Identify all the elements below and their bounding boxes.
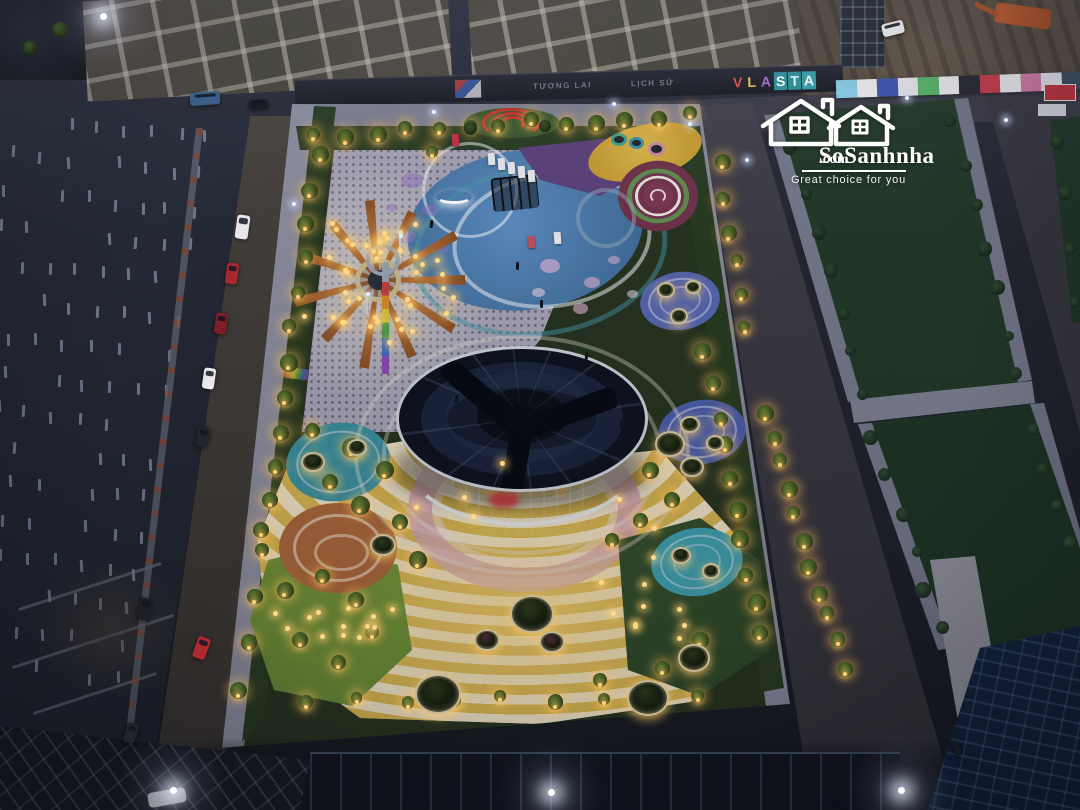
construction-pillar: [181, 128, 185, 140]
path-light: [382, 231, 387, 236]
street-lamp-light: [366, 292, 370, 296]
path-light: [285, 626, 290, 631]
path-light: [682, 623, 687, 628]
paint-splash: [532, 288, 545, 297]
work-light: [548, 789, 555, 796]
planter-tree: [375, 537, 392, 551]
planter-tree: [517, 599, 547, 624]
construction-pillar: [13, 441, 17, 453]
roof-hub: [506, 405, 538, 433]
vlasta-letter: S: [774, 71, 788, 89]
tree-uplight: [529, 122, 533, 126]
sign-board: [488, 153, 496, 165]
street-tree: [494, 690, 506, 702]
trampoline: [648, 142, 665, 156]
tree-uplight: [723, 448, 727, 452]
planter-tree: [688, 283, 697, 290]
tree-uplight: [726, 237, 730, 241]
tree-uplight: [743, 330, 747, 334]
person: [430, 220, 434, 228]
tree-uplight: [398, 525, 402, 529]
path-light: [327, 255, 332, 260]
tree-uplight: [791, 515, 795, 519]
construction-pillar: [95, 306, 99, 318]
tree-uplight: [236, 694, 240, 698]
tree-planter: [539, 631, 565, 653]
hoarding-panel: [979, 75, 1000, 94]
path-light: [378, 250, 383, 255]
construction-pillar: [37, 152, 41, 164]
tree-uplight: [382, 474, 386, 478]
path-light: [307, 615, 312, 620]
construction-pillar: [122, 126, 125, 138]
construction-pillar: [108, 381, 111, 393]
trampoline: [611, 133, 627, 146]
tree-uplight: [622, 124, 626, 128]
tree-planter: [347, 439, 367, 456]
construction-pillar: [38, 479, 41, 491]
path-light: [462, 495, 467, 500]
street-tree: [715, 154, 731, 170]
construction-pillar: [148, 312, 152, 324]
tree-uplight: [437, 131, 441, 135]
tree-uplight: [763, 417, 767, 421]
street-tree: [722, 471, 738, 487]
sign-board: [452, 134, 460, 146]
construction-pillar: [1, 515, 4, 527]
street-tree: [664, 492, 680, 508]
tree-uplight: [737, 542, 741, 546]
construction-pillar: [60, 190, 64, 202]
street-tree: [683, 106, 697, 120]
tree-uplight: [286, 366, 290, 370]
tree-uplight: [287, 329, 291, 333]
street-tree: [539, 120, 551, 132]
street-tree: [398, 121, 412, 135]
lawn-tree: [857, 389, 868, 400]
path-light: [441, 286, 446, 291]
street-tree: [370, 126, 387, 143]
lawn-tree: [838, 308, 850, 320]
street-tree: [409, 551, 427, 569]
street-tree: [322, 474, 338, 490]
construction-pillar: [83, 520, 86, 532]
tree-uplight: [719, 422, 723, 426]
sign-board: [528, 236, 536, 248]
paint-splash: [627, 290, 638, 298]
tree-planter: [671, 547, 691, 564]
street-tree: [351, 496, 370, 515]
path-light: [413, 254, 418, 259]
construction-pillar: [127, 268, 130, 280]
street-tree: [402, 696, 414, 708]
construction-pillar: [2, 185, 5, 197]
hoarding-panel: [1000, 74, 1021, 93]
planter-tree: [351, 441, 363, 451]
billboard-text-tuong-lai: TƯƠNG LAI: [533, 80, 592, 91]
tree-uplight: [739, 297, 743, 301]
construction-pillar: [57, 375, 61, 387]
tree-planter: [680, 416, 700, 433]
tree-planter: [474, 629, 500, 651]
lawn-tree: [977, 241, 992, 256]
tree-planter: [510, 595, 554, 632]
lawn-tree: [824, 263, 838, 277]
street-tree: [831, 632, 845, 646]
construction-pillar: [71, 118, 74, 130]
street-tree: [348, 592, 364, 608]
street-tree: [787, 506, 800, 519]
path-light: [405, 297, 410, 302]
tree-uplight: [282, 401, 286, 405]
street-tree: [52, 22, 68, 38]
street-tree: [292, 632, 308, 648]
vlasta-letter: A: [759, 72, 774, 90]
path-light: [651, 555, 656, 560]
tree-planter: [680, 457, 704, 477]
tree-uplight: [787, 493, 791, 497]
construction-pillar: [0, 549, 2, 561]
construction-pillar: [117, 343, 120, 355]
car-windshield: [199, 429, 208, 435]
watermark-sosanhnha: SoSanhnha.com Great choice for you: [756, 94, 912, 186]
tree-uplight: [564, 127, 568, 131]
tree-uplight: [282, 593, 286, 597]
street-tree: [524, 112, 539, 127]
ring-swirl: [576, 188, 636, 248]
street-tree: [691, 690, 703, 702]
street-tree: [559, 117, 574, 132]
path-light: [652, 526, 657, 531]
work-light: [898, 787, 905, 794]
street-tree: [23, 41, 37, 55]
tree-uplight: [696, 698, 700, 702]
tree-uplight: [376, 138, 380, 142]
car-windshield: [251, 100, 264, 103]
construction-pillar: [117, 156, 121, 168]
planter-tree: [661, 285, 672, 294]
car-windshield: [128, 725, 137, 732]
tree-uplight: [594, 127, 598, 131]
construction-pillar: [142, 489, 146, 501]
house-logo-icon: [759, 94, 909, 150]
lawn-tree: [1065, 243, 1076, 254]
construction-pillar: [122, 454, 125, 466]
lawn-tree: [990, 280, 1005, 295]
path-light: [440, 272, 445, 277]
planter-tree: [544, 634, 561, 648]
street-tree: [642, 462, 659, 479]
tree-planter: [670, 308, 688, 323]
construction-pillar: [173, 167, 176, 179]
construction-pillar: [113, 529, 117, 541]
street-lamp-light: [292, 202, 296, 206]
planter-tree: [634, 684, 663, 708]
tree-planter: [415, 674, 461, 713]
street-lamp-light: [745, 158, 749, 162]
sign-board: [554, 232, 562, 244]
tree-uplight: [311, 137, 315, 141]
planter-tree: [675, 549, 687, 559]
sign-board: [498, 158, 506, 170]
construction-pillar: [4, 365, 7, 377]
tree-uplight: [598, 683, 602, 687]
tree-uplight: [260, 553, 264, 557]
street-tree: [299, 250, 313, 264]
construction-pillar: [90, 340, 93, 352]
tree-planter: [370, 534, 396, 556]
dirt-patch: [30, 560, 190, 700]
tree-uplight: [354, 603, 358, 607]
street-tree: [351, 692, 362, 703]
car-windshield: [228, 265, 237, 271]
street-tree: [315, 569, 330, 584]
path-light: [395, 317, 400, 322]
construction-pillar: [163, 202, 166, 214]
construction-pillar: [67, 303, 70, 315]
construction-pillar: [9, 475, 13, 487]
construction-pillar: [66, 157, 70, 169]
sign-board: [508, 162, 516, 174]
billboard-graphic: [455, 79, 481, 98]
street-tree: [305, 423, 320, 438]
tree-uplight: [610, 543, 614, 547]
path-light: [377, 239, 382, 244]
path-light: [398, 248, 403, 253]
tree-uplight: [403, 131, 407, 135]
street-tree: [426, 146, 438, 158]
planter-tree: [660, 435, 680, 451]
tree-uplight: [657, 123, 661, 127]
street-tree: [307, 128, 320, 141]
observation-tower: [382, 262, 389, 374]
street-tree: [255, 543, 269, 557]
construction-pillar: [78, 413, 81, 425]
construction-pillar: [108, 233, 112, 245]
watermark-tagline: Great choice for you: [756, 174, 912, 186]
billboard-text-lich-su: LỊCH SỬ: [631, 78, 675, 88]
solar-panel-roof: [396, 346, 648, 492]
tree-uplight: [304, 705, 308, 709]
tree-uplight: [296, 295, 300, 299]
sign-board: [528, 170, 536, 182]
path-light: [375, 319, 380, 324]
path-light: [343, 268, 348, 273]
path-light: [414, 505, 419, 510]
path-light: [331, 315, 336, 320]
tree-uplight: [357, 509, 361, 513]
street-tree: [268, 459, 283, 474]
construction-pillar: [153, 271, 157, 283]
construction-pillar: [34, 333, 37, 345]
paint-splash: [422, 205, 438, 216]
construction-pillar: [116, 488, 119, 500]
construction-pillar: [22, 405, 26, 417]
lawn-tree: [845, 346, 856, 357]
path-light: [365, 624, 370, 629]
street-tree: [301, 183, 317, 199]
tree-uplight: [773, 442, 777, 446]
tree-planter: [301, 452, 325, 472]
street-tree: [694, 343, 711, 360]
planter-tree: [674, 311, 685, 320]
tree-planter: [627, 680, 669, 716]
construction-pillar: [137, 383, 140, 395]
sign-board: [518, 166, 526, 178]
construction-pillar: [28, 518, 31, 530]
street-tree: [633, 513, 648, 528]
planter-tree: [479, 632, 496, 646]
construction-pillar: [0, 400, 1, 412]
construction-pillar: [123, 306, 126, 318]
construction-pillar: [73, 263, 76, 275]
construction-pillar: [163, 239, 167, 251]
tree-uplight: [802, 545, 806, 549]
vlasta-letter: T: [788, 71, 801, 89]
tree-planter: [685, 280, 701, 294]
street-tree: [655, 661, 670, 676]
street-lamp-light: [399, 234, 403, 238]
street-tree: [277, 390, 293, 406]
construction-pillar: [95, 121, 98, 133]
tree-uplight: [660, 671, 664, 675]
lawn-tree: [915, 582, 930, 597]
tree-planter: [706, 435, 724, 450]
lawn-tree: [1037, 463, 1047, 473]
construction-pillar: [149, 459, 152, 471]
car-windshield: [217, 315, 226, 321]
white-sign: [1038, 104, 1066, 116]
hoarding-panel: [938, 76, 959, 95]
construction-pillar: [142, 203, 145, 215]
construction-pillar: [140, 532, 143, 544]
tree-uplight: [638, 523, 642, 527]
tree-uplight: [278, 436, 282, 440]
tree-planter: [655, 431, 685, 457]
scaffold-tower: [840, 0, 884, 68]
tree-planter: [678, 644, 710, 671]
tree-uplight: [318, 158, 322, 162]
tree-uplight: [498, 698, 502, 702]
tree-uplight: [430, 154, 434, 158]
tree-uplight: [825, 616, 829, 620]
lawn-tree: [801, 189, 812, 200]
blue-truck: [190, 90, 221, 105]
car-windshield: [140, 600, 150, 607]
street-tree: [464, 122, 477, 135]
car-windshield: [952, 742, 958, 747]
car-windshield: [194, 93, 215, 98]
path-light: [345, 238, 350, 243]
tree-uplight: [806, 571, 810, 575]
street-tree: [230, 682, 247, 699]
tree-uplight: [711, 387, 715, 391]
tree-uplight: [310, 433, 314, 437]
construction-pillar: [150, 125, 153, 137]
vlasta-letter: A: [802, 71, 817, 89]
lawn-tree: [912, 546, 923, 557]
construction-fence-bottom: [310, 752, 900, 810]
path-light: [410, 329, 415, 334]
construction-pillar: [87, 190, 90, 202]
vlasta-letter: L: [745, 72, 758, 90]
path-light: [444, 311, 449, 316]
tree-uplight: [320, 579, 324, 583]
street-tree: [748, 594, 766, 612]
street-tree: [593, 673, 607, 687]
street-tree: [392, 514, 408, 530]
hoarding-panel: [959, 75, 980, 94]
street-tree: [721, 225, 737, 241]
tree-uplight: [336, 665, 340, 669]
planter-tree: [305, 455, 320, 467]
path-light: [340, 320, 345, 325]
street-tree: [838, 662, 853, 677]
lawn-tree: [863, 430, 878, 445]
street-tree: [433, 122, 446, 135]
tree-uplight: [406, 705, 410, 709]
lawn-tree: [1058, 186, 1072, 200]
person: [516, 262, 519, 270]
street-lamp-light: [612, 102, 616, 106]
planter-tree: [683, 648, 704, 666]
white-van: [234, 214, 250, 240]
street-tree: [598, 693, 610, 705]
planter-tree: [422, 679, 454, 706]
street-tree: [811, 586, 828, 603]
construction-pillar: [99, 452, 102, 464]
construction-pillar: [80, 380, 83, 392]
construction-pillar: [0, 219, 3, 231]
tree-uplight: [728, 482, 732, 486]
construction-pillar: [14, 627, 18, 639]
tree-uplight: [273, 470, 277, 474]
red-sign: [1044, 84, 1076, 101]
path-light: [357, 296, 362, 301]
construction-pillar: [25, 221, 28, 233]
tree-uplight: [778, 463, 782, 467]
watermark-brand: SoSanhnha.com: [756, 144, 912, 167]
lawn-tree: [1050, 135, 1064, 149]
construction-pillar: [60, 340, 63, 352]
construction-pillar: [11, 145, 15, 157]
street-tree: [280, 354, 297, 371]
hoarding-panel: [918, 77, 939, 96]
tree-uplight: [817, 598, 821, 602]
tree-uplight: [688, 115, 692, 119]
lamp-pole: [366, 294, 368, 314]
tree-uplight: [252, 600, 256, 604]
tree-uplight: [304, 260, 308, 264]
street-tree: [616, 112, 633, 129]
tree-planter: [657, 282, 675, 297]
tree-uplight: [343, 141, 347, 145]
construction-pillar: [133, 237, 137, 249]
brand-name: SoSanhnha: [819, 144, 935, 167]
tree-uplight: [415, 564, 419, 568]
street-lamp-light: [688, 122, 692, 126]
street-tree: [247, 589, 263, 605]
tree-uplight: [843, 672, 847, 676]
tree-uplight: [307, 194, 311, 198]
car-windshield: [205, 370, 214, 376]
tree-uplight: [247, 646, 251, 650]
path-light: [371, 614, 376, 619]
construction-pillar: [203, 130, 206, 142]
tree-uplight: [298, 643, 302, 647]
car-windshield: [198, 639, 208, 647]
tree-uplight: [303, 227, 307, 231]
